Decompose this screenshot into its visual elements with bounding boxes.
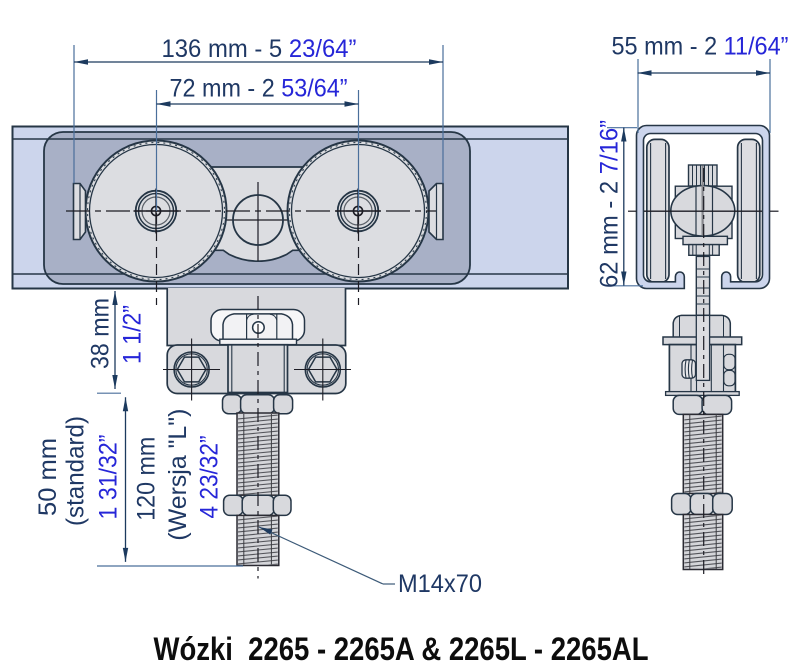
svg-text:120 mm: 120 mm xyxy=(133,437,161,521)
svg-text:62 mm - 2 7/16”: 62 mm - 2 7/16” xyxy=(596,120,624,288)
svg-text:38 mm: 38 mm xyxy=(87,298,115,369)
svg-text:Wózki 2265 - 2265A & 2265L -: Wózki 2265 - 2265A & 2265L - 2265AL xyxy=(154,631,649,667)
svg-text:55 mm - 2 11/64”: 55 mm - 2 11/64” xyxy=(612,33,789,61)
svg-text:4 23/32”: 4 23/32” xyxy=(196,436,224,519)
svg-text:136 mm - 5 23/64”: 136 mm - 5 23/64” xyxy=(162,35,357,63)
svg-text:50 mm: 50 mm xyxy=(34,438,62,516)
svg-text:(Wersja "L"): (Wersja "L") xyxy=(164,409,192,541)
svg-text:1 31/32”: 1 31/32” xyxy=(95,435,123,520)
svg-text:M14x70: M14x70 xyxy=(398,570,482,598)
svg-text:(standard): (standard) xyxy=(62,416,90,526)
svg-text:1 1/2”: 1 1/2” xyxy=(119,305,147,364)
svg-text:72 mm - 2 53/64”: 72 mm - 2 53/64” xyxy=(170,75,348,103)
